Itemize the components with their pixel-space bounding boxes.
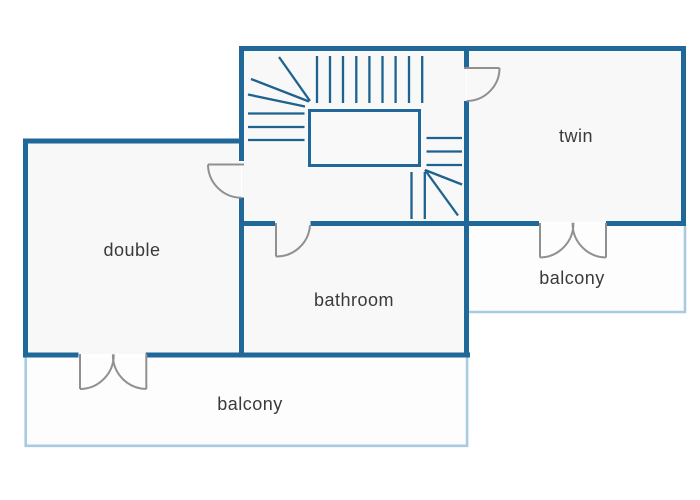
svg-text:balcony: balcony [217, 394, 283, 414]
svg-text:balcony: balcony [539, 268, 605, 288]
svg-text:bathroom: bathroom [314, 290, 394, 310]
svg-text:double: double [103, 240, 160, 260]
svg-text:twin: twin [559, 126, 593, 146]
